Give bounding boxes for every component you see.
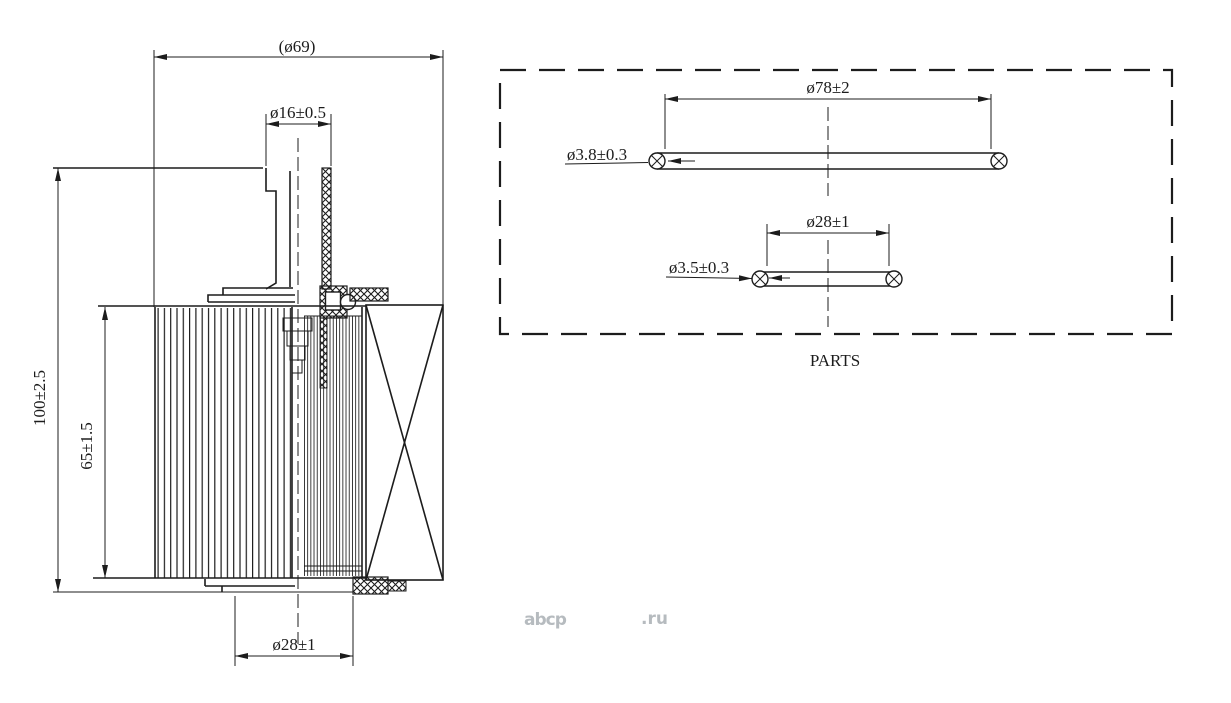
dim-overall-diameter: (ø69) xyxy=(154,37,443,307)
dim-label-oring-small-cord: ø3.5±0.3 xyxy=(669,258,729,277)
dim-label-overall-diameter: (ø69) xyxy=(279,37,316,56)
dim-bottom-bore: ø28±1 xyxy=(235,596,353,666)
filter-body xyxy=(93,305,443,580)
dim-label-element-height: 65±1.5 xyxy=(77,422,96,470)
dim-tube-diameter: ø16±0.5 xyxy=(266,103,331,166)
pleated-element-section xyxy=(304,316,362,576)
oring-small-left-section xyxy=(752,271,768,287)
dim-label-oring-large-od: ø78±2 xyxy=(806,78,849,97)
oring-large-right-section xyxy=(991,153,1007,169)
dim-overall-height: 100±2.5 xyxy=(30,168,58,592)
parts-box: PARTS ø78±2 ø3.8±0.3 xyxy=(500,70,1172,370)
outer-can-cutaway xyxy=(366,305,443,580)
oring-large: ø78±2 ø3.8±0.3 xyxy=(565,78,1007,196)
oring-small-right-section xyxy=(886,271,902,287)
technical-drawing-page: (ø69) ø16±0.5 xyxy=(0,0,1231,703)
parts-box-title: PARTS xyxy=(810,351,860,370)
filter-drawing-svg: (ø69) ø16±0.5 xyxy=(0,0,1231,703)
pleated-element-exterior xyxy=(155,308,292,578)
dim-label-tube-diameter: ø16±0.5 xyxy=(270,103,326,122)
dim-label-bottom-bore: ø28±1 xyxy=(272,635,315,654)
dim-label-oring-small-od: ø28±1 xyxy=(806,212,849,231)
watermark-tld: .ru xyxy=(641,609,668,629)
dim-label-overall-height: 100±2.5 xyxy=(30,370,49,426)
bottom-end-cap xyxy=(53,577,406,594)
tube-seal-hatch xyxy=(322,168,331,289)
watermark-brand: abcp xyxy=(524,610,567,630)
oring-large-left-section xyxy=(649,153,665,169)
oring-small: ø28±1 ø3.5±0.3 xyxy=(666,212,902,327)
watermark: abcp .ru xyxy=(524,609,668,630)
main-section-view: (ø69) ø16±0.5 xyxy=(30,37,443,666)
parts-box-border xyxy=(500,70,1172,334)
dim-element-height: 65±1.5 xyxy=(77,307,105,578)
dim-label-oring-large-cord: ø3.8±0.3 xyxy=(567,145,627,164)
